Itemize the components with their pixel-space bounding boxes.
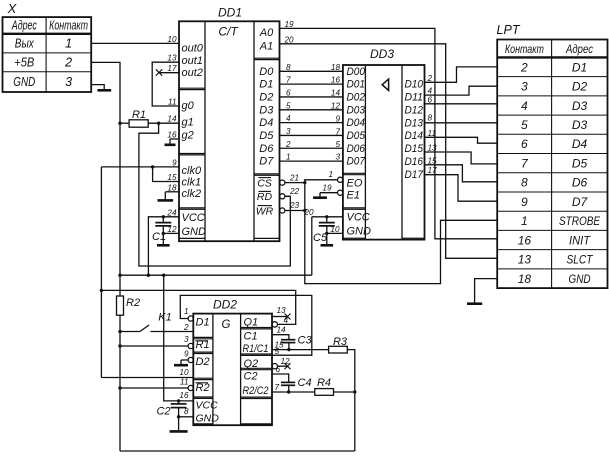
svg-text:VCC: VCC [182, 212, 205, 224]
svg-text:R4: R4 [317, 377, 331, 389]
svg-text:21: 21 [289, 173, 299, 182]
svg-text:22: 22 [289, 187, 300, 196]
svg-text:D3: D3 [572, 118, 588, 132]
svg-text:C5: C5 [313, 232, 328, 244]
svg-text:D07: D07 [347, 156, 366, 168]
svg-text:DD1: DD1 [218, 6, 242, 20]
svg-text:WR: WR [256, 206, 274, 218]
svg-text:8: 8 [286, 63, 291, 72]
svg-text:14: 14 [331, 89, 341, 98]
svg-text:D01: D01 [347, 79, 366, 91]
svg-text:E1: E1 [347, 189, 360, 201]
svg-text:D02: D02 [347, 92, 366, 104]
svg-text:1: 1 [286, 153, 291, 162]
svg-text:2: 2 [427, 74, 433, 83]
svg-text:D11: D11 [405, 92, 424, 104]
svg-text:15: 15 [428, 156, 438, 165]
svg-text:g1: g1 [182, 117, 194, 129]
svg-text:STROBE: STROBE [559, 214, 601, 228]
svg-text:R2: R2 [126, 297, 140, 309]
svg-text:13: 13 [518, 253, 532, 267]
svg-text:clk1: clk1 [182, 177, 202, 189]
svg-text:D03: D03 [347, 104, 366, 116]
svg-text:2: 2 [520, 60, 528, 74]
svg-text:3: 3 [65, 75, 72, 89]
svg-text:D12: D12 [405, 104, 424, 116]
svg-text:5: 5 [521, 118, 528, 132]
svg-text:C2: C2 [244, 370, 258, 382]
svg-text:R1/C1: R1/C1 [243, 343, 269, 355]
svg-text:out2: out2 [182, 67, 203, 79]
svg-text:1: 1 [521, 214, 528, 228]
svg-text:D5: D5 [259, 130, 274, 142]
svg-text:D1: D1 [259, 79, 273, 91]
svg-text:11: 11 [180, 377, 189, 386]
svg-text:5: 5 [286, 101, 291, 110]
svg-text:Адрес: Адрес [11, 19, 37, 33]
svg-text:Контакт: Контакт [49, 19, 88, 33]
svg-text:R1: R1 [132, 109, 146, 121]
svg-text:D2: D2 [572, 80, 588, 94]
svg-text:Q1: Q1 [244, 316, 259, 328]
svg-text:clk0: clk0 [182, 165, 202, 177]
svg-text:11: 11 [168, 98, 177, 107]
svg-text:DD2: DD2 [213, 297, 237, 311]
svg-text:R2: R2 [196, 382, 210, 394]
svg-text:18: 18 [331, 63, 341, 72]
svg-text:1: 1 [65, 37, 72, 51]
svg-text:A0: A0 [259, 27, 274, 39]
svg-text:D2: D2 [196, 356, 210, 368]
svg-text:R3: R3 [333, 336, 348, 348]
svg-text:14: 14 [167, 115, 177, 124]
svg-text:9: 9 [184, 349, 189, 358]
svg-text:D13: D13 [405, 117, 424, 129]
svg-text:6: 6 [286, 88, 291, 97]
svg-text:INIT: INIT [569, 233, 592, 247]
svg-text:19: 19 [322, 183, 332, 192]
svg-text:D1: D1 [572, 60, 587, 74]
svg-text:20: 20 [284, 35, 295, 44]
svg-text:D5: D5 [572, 156, 588, 170]
svg-text:VCC: VCC [196, 399, 219, 411]
svg-text:D7: D7 [572, 195, 589, 209]
svg-text:RD: RD [257, 191, 273, 203]
svg-text:3: 3 [184, 335, 189, 344]
svg-text:D6: D6 [259, 143, 274, 155]
svg-text:D05: D05 [347, 130, 366, 142]
svg-text:D04: D04 [347, 117, 366, 129]
svg-text:A1: A1 [259, 41, 273, 53]
svg-text:C2: C2 [156, 406, 170, 418]
svg-text:DD3: DD3 [370, 47, 394, 61]
svg-text:2: 2 [285, 140, 291, 149]
svg-text:15: 15 [167, 173, 177, 182]
svg-text:1: 1 [328, 170, 333, 179]
svg-text:D17: D17 [405, 169, 424, 181]
svg-text:18: 18 [518, 272, 532, 286]
svg-text:C1: C1 [244, 331, 258, 343]
svg-text:+5В: +5В [14, 56, 34, 70]
svg-text:D7: D7 [259, 156, 274, 168]
svg-text:13: 13 [167, 54, 177, 63]
svg-text:R2/C2: R2/C2 [243, 385, 269, 397]
svg-text:out0: out0 [182, 43, 204, 55]
svg-text:10: 10 [167, 35, 177, 44]
svg-text:D3: D3 [572, 99, 588, 113]
svg-text:D06: D06 [347, 143, 366, 155]
svg-text:g2: g2 [182, 130, 194, 142]
svg-text:10: 10 [179, 368, 189, 377]
svg-text:C4: C4 [298, 377, 312, 389]
svg-text:17: 17 [167, 64, 177, 73]
svg-text:D14: D14 [405, 130, 424, 142]
svg-text:4: 4 [428, 87, 433, 96]
svg-text:7: 7 [286, 76, 291, 85]
svg-text:D1: D1 [196, 316, 210, 328]
svg-text:GND: GND [569, 272, 591, 286]
svg-text:14: 14 [277, 326, 287, 335]
svg-text:24: 24 [166, 208, 177, 217]
svg-text:18: 18 [167, 183, 177, 192]
svg-text:6: 6 [428, 95, 433, 104]
svg-text:clk2: clk2 [182, 188, 202, 200]
svg-text:3: 3 [521, 80, 528, 94]
svg-text:4: 4 [521, 99, 528, 113]
svg-text:D0: D0 [259, 66, 274, 78]
svg-text:D10: D10 [405, 79, 424, 91]
svg-text:SLCT: SLCT [567, 253, 594, 267]
svg-text:6: 6 [521, 137, 528, 151]
svg-text:1: 1 [184, 307, 189, 316]
svg-text:7: 7 [275, 383, 280, 392]
svg-text:Адрес: Адрес [565, 42, 593, 56]
svg-text:GND: GND [347, 225, 372, 237]
svg-text:K1: K1 [158, 312, 171, 324]
svg-text:D00: D00 [347, 66, 366, 78]
svg-text:C/T: C/T [218, 25, 239, 39]
svg-text:C1: C1 [152, 231, 166, 243]
svg-text:Контакт: Контакт [505, 42, 544, 56]
svg-text:C3: C3 [298, 335, 313, 347]
svg-text:Вых: Вых [15, 37, 35, 51]
svg-text:D6: D6 [572, 176, 588, 190]
svg-text:9: 9 [521, 195, 528, 209]
svg-text:D4: D4 [572, 137, 588, 151]
svg-text:CS: CS [257, 177, 272, 189]
svg-text:2: 2 [64, 56, 72, 70]
svg-text:3: 3 [335, 153, 340, 162]
svg-text:D16: D16 [405, 156, 424, 168]
svg-text:9: 9 [172, 158, 177, 167]
svg-text:D4: D4 [259, 117, 273, 129]
svg-text:Q2: Q2 [244, 358, 259, 370]
svg-text:8: 8 [428, 114, 433, 123]
svg-text:G: G [222, 319, 231, 331]
svg-text:13: 13 [428, 144, 438, 153]
svg-text:17: 17 [428, 166, 438, 175]
svg-text:GND: GND [196, 412, 220, 424]
svg-text:D2: D2 [259, 92, 273, 104]
svg-text:16: 16 [331, 76, 341, 85]
svg-text:GND: GND [13, 75, 35, 89]
svg-text:8: 8 [521, 176, 528, 190]
svg-text:X: X [7, 1, 18, 16]
svg-text:16: 16 [518, 233, 532, 247]
svg-text:19: 19 [285, 20, 295, 29]
svg-text:16: 16 [179, 391, 189, 400]
svg-text:LPT: LPT [497, 23, 521, 37]
svg-text:out1: out1 [182, 55, 203, 67]
svg-text:D3: D3 [259, 104, 274, 116]
svg-text:VCC: VCC [347, 211, 370, 223]
svg-text:16: 16 [167, 131, 177, 140]
svg-text:GND: GND [182, 226, 207, 238]
svg-text:3: 3 [286, 127, 291, 136]
svg-text:g0: g0 [182, 100, 195, 112]
svg-text:2: 2 [183, 323, 189, 332]
svg-text:4: 4 [286, 114, 291, 123]
svg-text:D15: D15 [405, 143, 424, 155]
svg-text:EO: EO [347, 177, 363, 189]
